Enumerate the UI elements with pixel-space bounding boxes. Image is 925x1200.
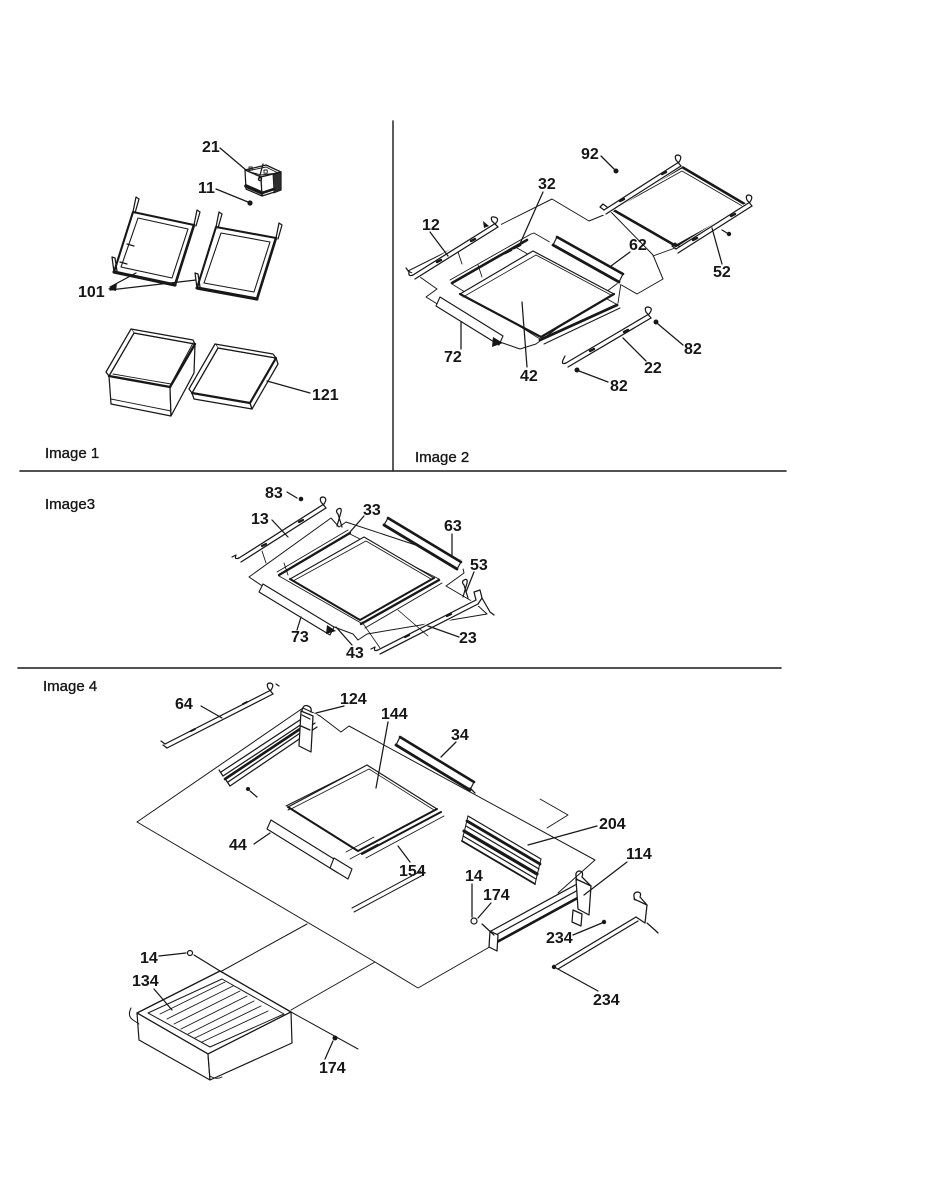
svg-text:21: 21	[202, 139, 220, 156]
svg-text:154: 154	[399, 863, 426, 880]
svg-text:32: 32	[538, 176, 556, 193]
svg-text:Image 2: Image 2	[415, 449, 469, 466]
svg-text:204: 204	[599, 816, 626, 833]
svg-text:Image 1: Image 1	[45, 445, 99, 462]
svg-text:114: 114	[626, 846, 652, 863]
svg-text:14: 14	[465, 868, 483, 885]
svg-text:23: 23	[459, 630, 477, 647]
svg-text:43: 43	[346, 645, 364, 662]
svg-text:63: 63	[444, 518, 462, 535]
svg-text:92: 92	[581, 146, 599, 163]
svg-text:Image3: Image3	[45, 496, 95, 513]
svg-text:72: 72	[444, 349, 462, 366]
svg-text:34: 34	[451, 727, 469, 744]
svg-text:174: 174	[483, 887, 510, 904]
svg-text:134: 134	[132, 973, 159, 990]
svg-text:42: 42	[520, 368, 538, 385]
svg-text:Image 4: Image 4	[43, 678, 97, 695]
svg-text:73: 73	[291, 629, 309, 646]
svg-text:234: 234	[593, 992, 620, 1009]
svg-text:53: 53	[470, 557, 488, 574]
svg-text:82: 82	[684, 341, 702, 358]
svg-text:52: 52	[713, 264, 731, 281]
svg-text:64: 64	[175, 696, 193, 713]
svg-text:12: 12	[422, 217, 440, 234]
svg-text:22: 22	[644, 360, 662, 377]
svg-text:101: 101	[78, 284, 105, 301]
svg-text:144: 144	[381, 706, 408, 723]
svg-text:121: 121	[312, 387, 339, 404]
svg-text:13: 13	[251, 511, 269, 528]
svg-text:83: 83	[265, 485, 283, 502]
svg-text:62: 62	[629, 237, 647, 254]
svg-text:174: 174	[319, 1060, 346, 1077]
svg-text:11: 11	[198, 180, 215, 197]
svg-text:234: 234	[546, 930, 573, 947]
svg-text:82: 82	[610, 378, 628, 395]
svg-text:44: 44	[229, 837, 247, 854]
svg-text:33: 33	[363, 502, 381, 519]
svg-text:14: 14	[140, 950, 158, 967]
